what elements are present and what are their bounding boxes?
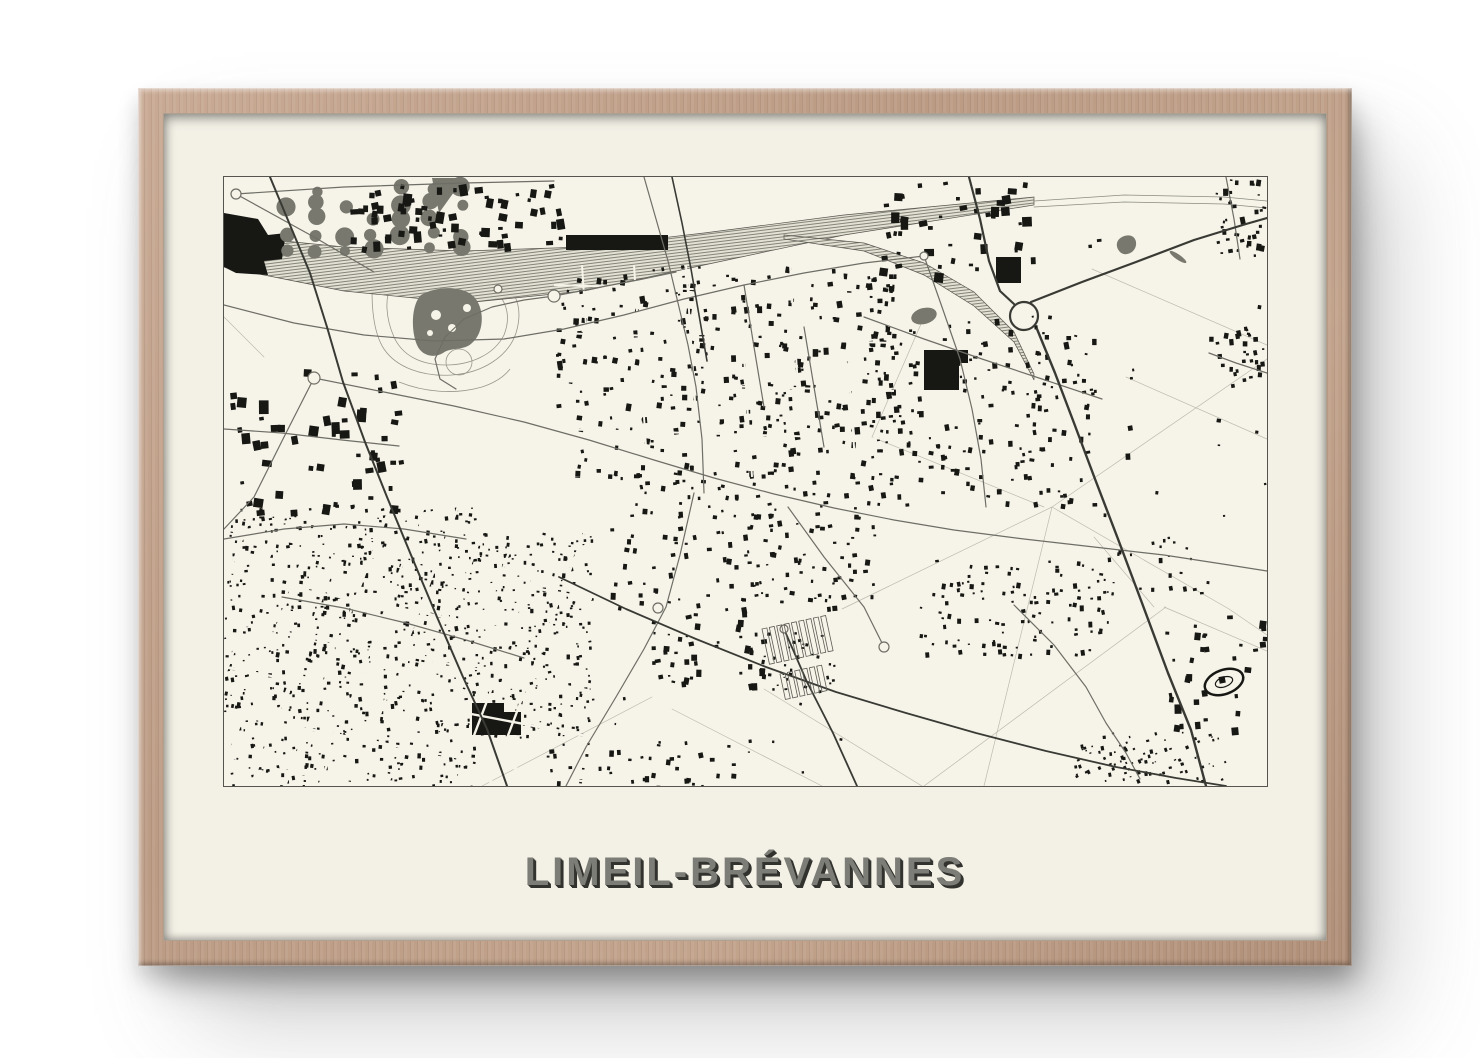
poster-mat: LIMEIL-BRÉVANNES: [163, 113, 1327, 941]
poster-frame: LIMEIL-BRÉVANNES: [138, 88, 1352, 966]
map-panel: [223, 176, 1268, 787]
wall-background: LIMEIL-BRÉVANNES: [0, 0, 1480, 1058]
poster-title: LIMEIL-BRÉVANNES: [164, 850, 1326, 894]
city-map-graphic: [224, 177, 1267, 786]
